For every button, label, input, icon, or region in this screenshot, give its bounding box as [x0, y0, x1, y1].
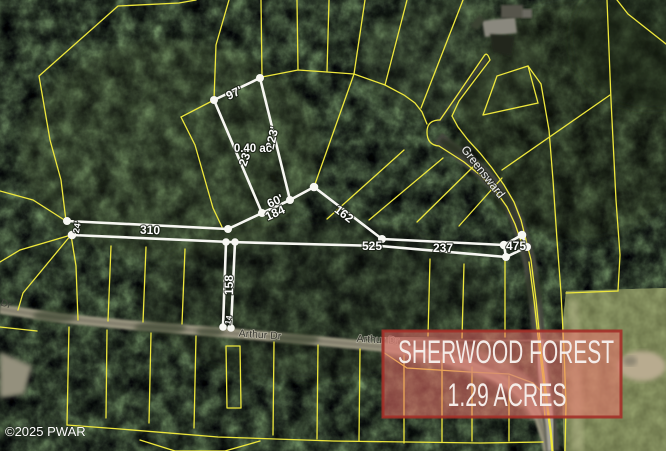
svg-text:1.29 ACRES: 1.29 ACRES — [448, 377, 567, 414]
svg-text:0.40 ac: 0.40 ac — [234, 143, 273, 155]
svg-text:24': 24' — [71, 220, 83, 234]
svg-text:©2025 PWAR: ©2025 PWAR — [5, 424, 86, 439]
svg-text:310: 310 — [140, 223, 161, 238]
svg-text:525: 525 — [362, 239, 382, 253]
svg-text:SHERWOOD FOREST: SHERWOOD FOREST — [398, 335, 614, 370]
svg-text:158: 158 — [222, 275, 236, 295]
svg-text:475: 475 — [506, 239, 526, 253]
svg-text:237: 237 — [433, 241, 453, 255]
